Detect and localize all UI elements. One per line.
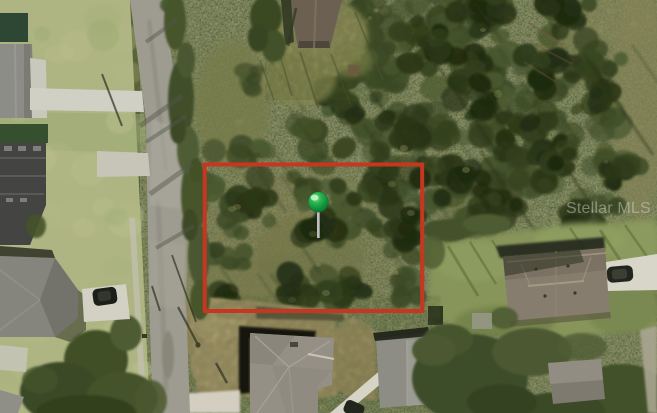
- svg-text:Stellar MLS: Stellar MLS: [566, 200, 651, 217]
